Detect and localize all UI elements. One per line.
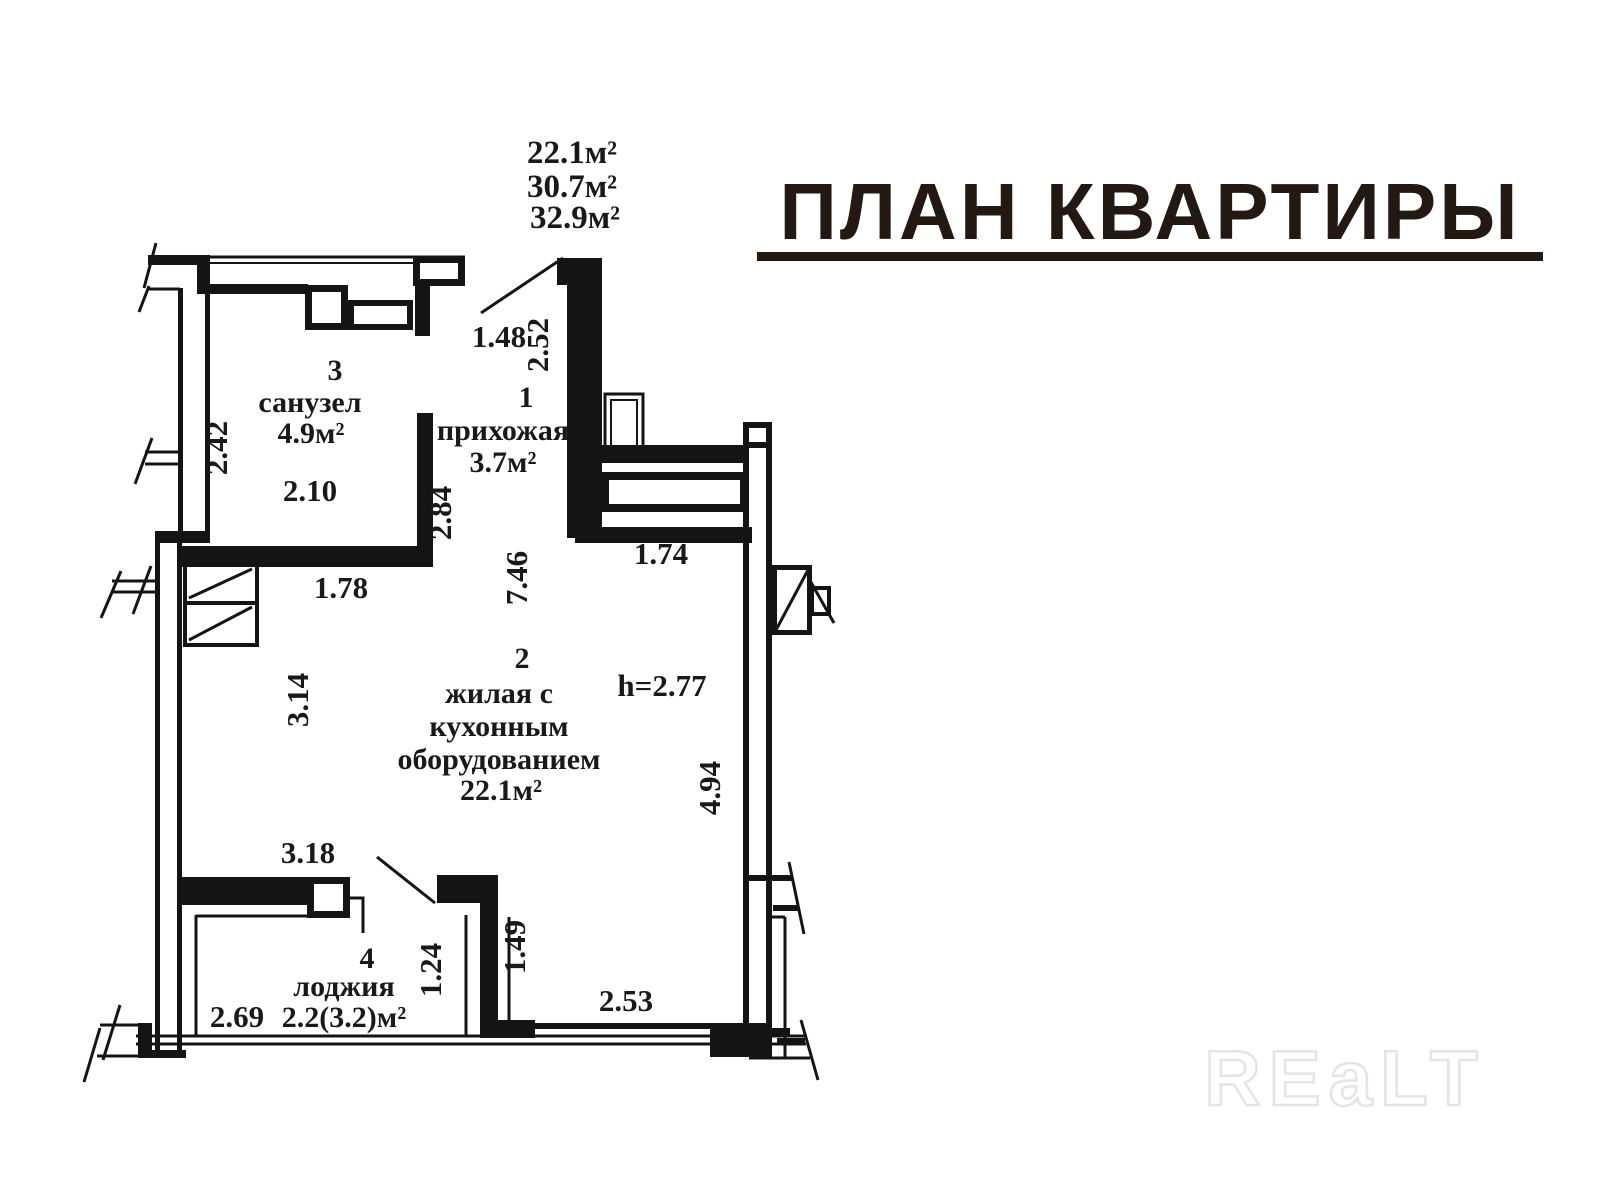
title-underline: [757, 252, 1543, 261]
dim-2-52: 2.52: [520, 318, 555, 372]
dim-2-53: 2.53: [599, 983, 653, 1018]
floor-plan-page: 22.1м² 30.7м² 32.9м² 1.48 2.52 3 санузел…: [0, 0, 1600, 1200]
floor-plan: 22.1м² 30.7м² 32.9м² 1.48 2.52 3 санузел…: [0, 0, 1600, 1200]
dim-4-94: 4.94: [692, 761, 727, 815]
dim-3-14: 3.14: [280, 673, 315, 727]
room-hallway-area: 3.7м²: [470, 446, 537, 479]
door-leaf: [605, 394, 643, 447]
dim-1-74: 1.74: [634, 536, 688, 571]
page-title: ПЛАН КВАРТИРЫ: [779, 167, 1520, 256]
room-loggia-area: 2.2(3.2)м²: [282, 1001, 406, 1034]
dim-2-10: 2.10: [283, 473, 337, 508]
watermark: REaLT: [1204, 1034, 1485, 1122]
leader-loggia-door: [377, 857, 435, 903]
dim-3-18: 3.18: [281, 835, 335, 870]
room-bathroom-area: 4.9м²: [278, 417, 345, 450]
room-living-name-3: оборудованием: [398, 743, 601, 776]
room-living-area: 22.1м²: [460, 774, 542, 807]
summary-area-1: 22.1м²: [527, 135, 617, 171]
dim-1-48: 1.48: [472, 319, 526, 354]
room-hallway-number: 1: [519, 381, 534, 414]
dim-2-42: 2.42: [199, 421, 234, 475]
room-living-number: 2: [515, 642, 530, 675]
header: ПЛАН КВАРТИРЫ: [757, 167, 1543, 261]
wall-inners: [312, 263, 807, 911]
room-bathroom-number: 3: [328, 354, 343, 387]
dim-1-78: 1.78: [314, 570, 368, 605]
windows-and-rails: [136, 257, 810, 1058]
dim-7-46: 7.46: [499, 551, 534, 605]
dim-1-24: 1.24: [413, 943, 448, 997]
room-loggia-name: лоджия: [293, 970, 394, 1003]
leader-entry: [481, 258, 563, 313]
room-bathroom-name: санузел: [258, 386, 361, 419]
dim-2-84: 2.84: [423, 486, 458, 540]
ceiling-height: h=2.77: [617, 668, 706, 703]
summary-area-3: 32.9м²: [530, 200, 620, 236]
dim-1-49: 1.49: [497, 920, 532, 974]
room-hallway-name: прихожая: [437, 414, 569, 447]
walls: [138, 255, 812, 1058]
room-living-name-1: жилая с: [445, 677, 553, 710]
dim-2-69: 2.69: [210, 999, 264, 1034]
room-living-name-2: кухонным: [429, 710, 568, 743]
